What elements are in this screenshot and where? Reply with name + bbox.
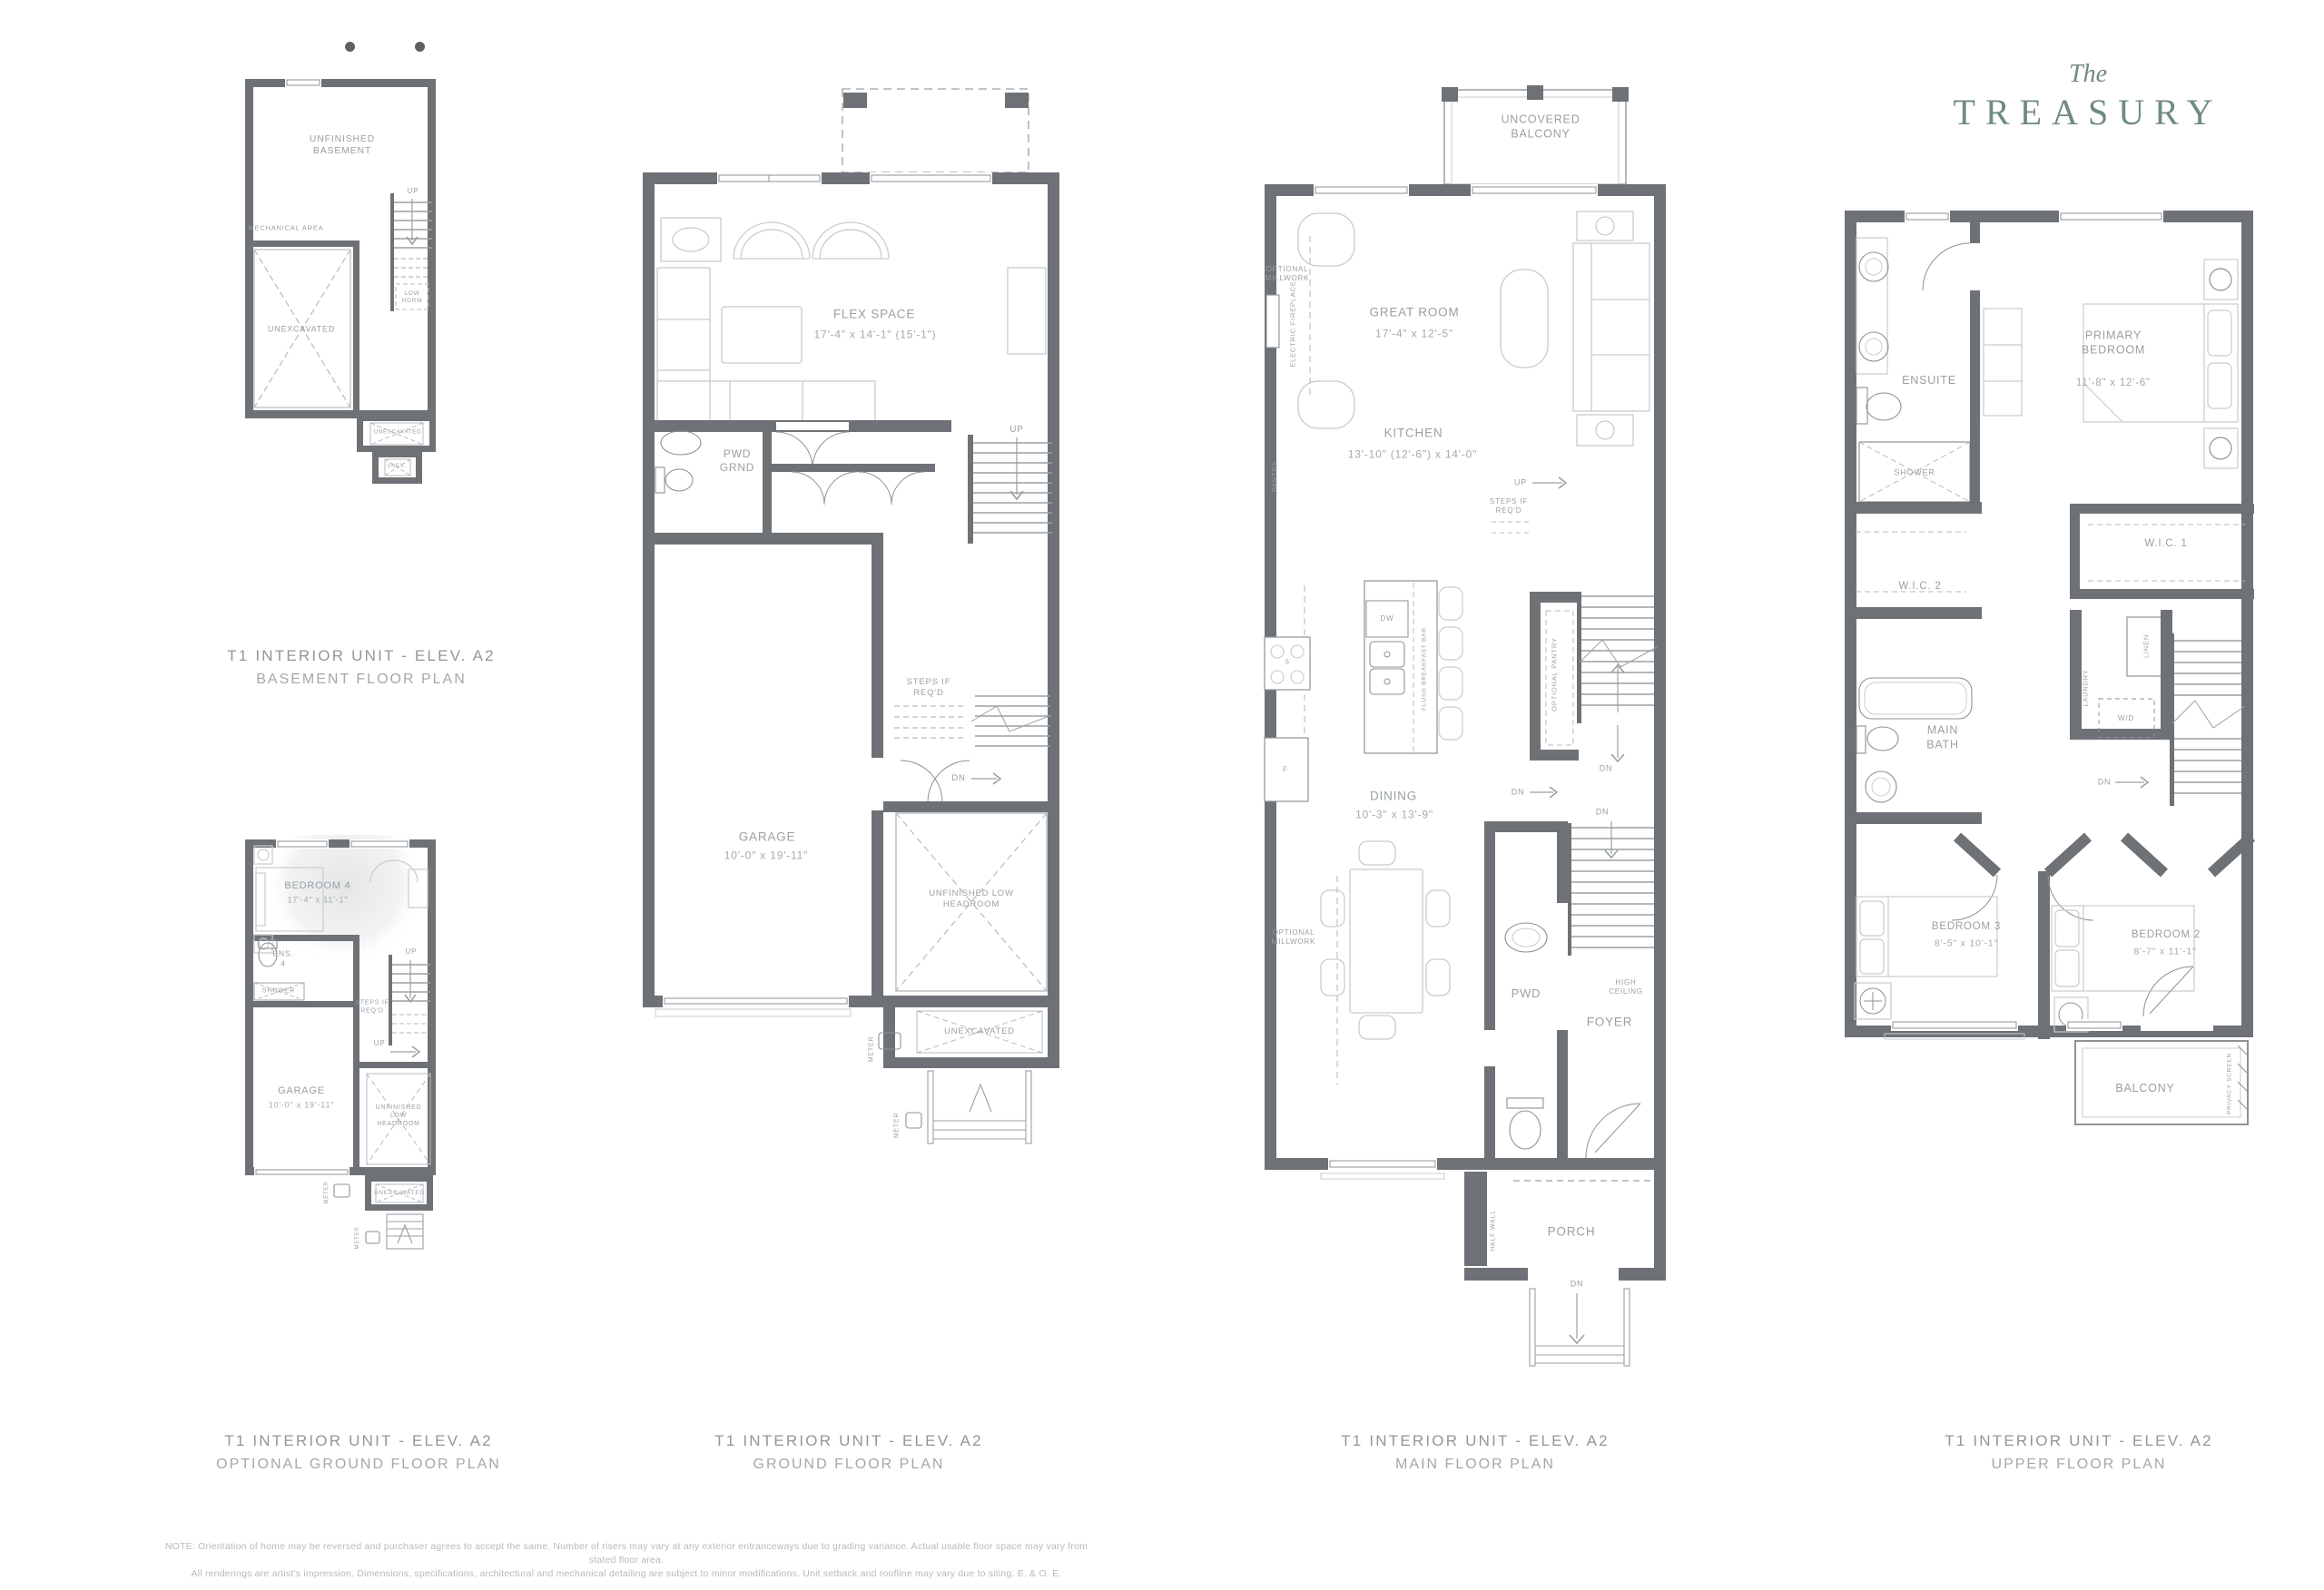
porch-stairs — [1530, 1289, 1630, 1366]
label-optional-millwork: OPTIONAL MILLWORK — [1256, 265, 1319, 283]
room-label-dining: DINING — [1370, 790, 1417, 805]
label-steps-if-reqd: STEPS IF REQ'D — [350, 999, 394, 1016]
label-steps-if-reqd: STEPS IF REQ'D — [1482, 497, 1535, 515]
dim-label-bedroom3: 8'-5" x 10'-1" — [1935, 937, 1998, 949]
label-electric-fireplace: ELECTRIC FIREPLACE — [1289, 280, 1297, 367]
label-dw: DW — [1381, 614, 1394, 623]
label-shower: SHOWER — [262, 988, 295, 996]
page: The TREASURY — [0, 0, 2324, 1590]
label-privacy-screen: PRIVACY SCREEN — [2227, 1053, 2233, 1114]
plan-title-line2: MAIN FLOOR PLAN — [1330, 1457, 1620, 1473]
room-label-mechanical-area: MECHANICAL AREA — [249, 223, 324, 231]
dim-label-garage: 10'-0" x 19'-11" — [724, 849, 808, 863]
optional-ground-floorplan-drawing — [243, 835, 443, 1425]
room-label-ensuite: ENSUITE — [1902, 374, 1956, 388]
stair-label-up: UP — [408, 187, 419, 196]
dim-label-great-room: 17'-4" x 12'-5" — [1375, 328, 1453, 341]
disclaimer-line1: NOTE: Orientation of home may be reverse… — [154, 1540, 1098, 1567]
disclaimer-line2: All renderings are artist's impression. … — [154, 1567, 1098, 1581]
brand-logo-name: TREASURY — [1952, 91, 2224, 133]
stairs-mid — [894, 696, 1051, 802]
label-optional-millwork-2: OPTIONAL MILLWORK — [1262, 928, 1325, 947]
plan-title-upper: T1 INTERIOR UNIT - ELEV. A2 UPPER FLOOR … — [1934, 1432, 2224, 1473]
room-label-porch: PORCH — [1548, 1225, 1596, 1241]
plan-ground: FLEX SPACE 17'-4" x 14'-1" (15'-1") PWD … — [635, 82, 1062, 1180]
label-linen: LINEN — [2142, 634, 2151, 658]
plan-title-line1: T1 INTERIOR UNIT - ELEV. A2 — [1934, 1432, 2224, 1450]
label-stove: S — [1285, 660, 1289, 668]
plan-title-line2: GROUND FLOOR PLAN — [704, 1457, 994, 1473]
label-optional-pantry: OPTIONAL PANTRY — [1551, 637, 1559, 711]
bullet-dot — [345, 42, 355, 52]
stairs-basement — [1568, 821, 1654, 956]
plan-title-line1: T1 INTERIOR UNIT - ELEV. A2 — [1330, 1432, 1620, 1450]
room-label-unfinished-basement: UNFINISHED BASEMENT — [297, 133, 388, 157]
room-label-main-bath: MAIN BATH — [1911, 723, 1974, 751]
room-label-unex: UNEX. — [388, 464, 407, 470]
plan-title-line1: T1 INTERIOR UNIT - ELEV. A2 — [213, 1432, 504, 1450]
label-high-ceiling: HIGH CEILING — [1603, 978, 1649, 996]
bedroom3-furniture — [1856, 897, 1997, 977]
main-floorplan-drawing — [1257, 77, 1689, 1379]
dim-label-garage: 10'-0" x 19'-11" — [269, 1100, 335, 1110]
disclaimer-note: NOTE: Orientation of home may be reverse… — [154, 1540, 1098, 1581]
label-low-hdrm: LOW HDRM — [395, 290, 429, 305]
room-label-bedroom4: BEDROOM 4 — [284, 880, 350, 893]
dim-label-primary-bedroom: 11'-8" x 12'-6" — [2076, 377, 2151, 389]
plan-title-line2: UPPER FLOOR PLAN — [1934, 1457, 2224, 1473]
room-label-pwd-grnd: PWD GRND — [711, 447, 763, 475]
label-meter: METER — [324, 1182, 330, 1204]
room-label-wic2: W.I.C. 2 — [1898, 580, 1941, 593]
room-label-foyer: FOYER — [1587, 1016, 1633, 1031]
brand-logo-prefix: The — [1952, 60, 2224, 89]
bullet-dot — [415, 42, 425, 52]
room-label-unfinished-low-headroom: UNFINISHED LOW HEADROOM — [926, 888, 1017, 910]
room-label-unexcavated: UNEXCAVATED — [374, 1190, 425, 1197]
room-label-unexcavated: UNEXCAVATED — [268, 324, 335, 334]
porch-stairs — [928, 1071, 1031, 1143]
stair-label-dn: DN — [951, 773, 965, 784]
dim-label-bedroom2: 8'-7" x 11'-1" — [2133, 946, 2196, 957]
plan-title-line2: BASEMENT FLOOR PLAN — [216, 672, 507, 688]
room-label-unfinished-low-headroom: UNFINISHED LOW HEADROOM — [371, 1104, 426, 1128]
label-uncovered-balcony: UNCOVERED BALCONY — [1472, 113, 1609, 141]
wic2-walls — [1845, 532, 1982, 619]
plan-upper: ENSUITE SHOWER PRIMARY BEDROOM 11'-8" x … — [1841, 201, 2299, 1331]
label-laundry: LAUNDRY — [2082, 669, 2090, 706]
great-room-furniture — [1298, 211, 1649, 446]
room-label-pwd: PWD — [1512, 986, 1541, 1001]
plan-title-line1: T1 INTERIOR UNIT - ELEV. A2 — [216, 647, 507, 665]
label-wd: W/D — [2118, 714, 2134, 723]
room-label-ens4: ENS. 4 — [271, 948, 296, 967]
plan-title-basement: T1 INTERIOR UNIT - ELEV. A2 BASEMENT FLO… — [216, 647, 507, 688]
stair-label-dn: DN — [1600, 763, 1613, 773]
ensuite-fixtures — [1856, 238, 1970, 502]
kitchen-island — [1364, 581, 1462, 753]
room-label-wic1: W.I.C. 1 — [2144, 537, 2187, 550]
ground-floorplan-drawing — [635, 82, 1062, 1180]
stair-label-up: UP — [1009, 425, 1024, 437]
label-steps-if-reqd: STEPS IF REQ'D — [899, 677, 959, 699]
plan-title-line2: OPTIONAL GROUND FLOOR PLAN — [213, 1457, 504, 1473]
room-label-great-room: GREAT ROOM — [1369, 306, 1459, 321]
label-fridge: F — [1283, 765, 1288, 775]
dim-label-bedroom4: 17'-4" x 11'-1" — [288, 895, 349, 905]
label-flush-breakfast-bar: FLUSH BREAKFAST BAR — [1422, 627, 1428, 711]
stairs-up — [968, 435, 1052, 544]
stair-label-up: UP — [406, 947, 418, 957]
plan-title-main: T1 INTERIOR UNIT - ELEV. A2 MAIN FLOOR P… — [1330, 1432, 1620, 1473]
room-label-garage: GARAGE — [278, 1085, 325, 1098]
room-label-bedroom2: BEDROOM 2 — [2132, 928, 2201, 941]
dining-furniture — [1321, 841, 1450, 1039]
stair-label-dn-porch: DN — [1571, 1279, 1584, 1289]
plan-title-line1: T1 INTERIOR UNIT - ELEV. A2 — [704, 1432, 994, 1450]
stair-label-dn-2: DN — [1512, 787, 1525, 797]
brand-logo: The TREASURY — [1952, 60, 2224, 133]
plan-optional-ground: BEDROOM 4 17'-4" x 11'-1" ENS. 4 SHOWER … — [243, 835, 443, 1425]
stair-label-dn-3: DN — [1596, 807, 1610, 817]
label-meter-2: METER — [355, 1227, 360, 1250]
room-label-flex-space: FLEX SPACE — [833, 308, 915, 323]
stair-label-dn: DN — [2098, 777, 2112, 787]
dim-label-flex-space: 17'-4" x 14'-1" (15'-1") — [814, 329, 937, 342]
stairs-dn — [2115, 633, 2245, 806]
label-meter: METER — [869, 1036, 875, 1063]
dim-label-kitchen: 13'-10" (12'-6") x 14'-0" — [1348, 448, 1477, 462]
exterior-stairs — [387, 1214, 423, 1249]
label-pantry: PANTRY — [1271, 461, 1279, 493]
hall-angled-walls — [1957, 837, 2251, 873]
dim-label-dining: 10'-3" x 13'-9" — [1355, 809, 1433, 822]
room-label-unexcavated: UNEXCAVATED — [944, 1026, 1015, 1037]
room-label-bedroom3: BEDROOM 3 — [1932, 920, 2001, 933]
label-shower: SHOWER — [1894, 467, 1935, 477]
plan-basement: UNFINISHED BASEMENT MECHANICAL AREA UP L… — [243, 77, 443, 585]
stairs-up — [389, 955, 430, 1057]
room-label-kitchen: KITCHEN — [1384, 427, 1443, 442]
stair-label-up: UP — [1514, 477, 1527, 487]
room-label-unexcavated-small: UNEXCAVATED — [374, 429, 421, 437]
room-label-balcony: BALCONY — [2115, 1082, 2174, 1096]
plan-title-optional-ground: T1 INTERIOR UNIT - ELEV. A2 OPTIONAL GRO… — [213, 1432, 504, 1473]
plan-title-ground: T1 INTERIOR UNIT - ELEV. A2 GROUND FLOOR… — [704, 1432, 994, 1473]
wic1-walls — [2070, 504, 2254, 599]
stairs-upper — [1577, 592, 1657, 761]
label-meter-2: METER — [894, 1113, 901, 1139]
primary-bedroom-furniture — [1984, 260, 2238, 468]
room-label-garage: GARAGE — [739, 830, 796, 846]
stair-label-up-2: UP — [374, 1039, 386, 1048]
plan-main: UNCOVERED BALCONY OPTIONAL MILLWORK ELEC… — [1257, 77, 1689, 1379]
upper-floorplan-drawing — [1841, 201, 2299, 1331]
room-label-primary-bedroom: PRIMARY BEDROOM — [2054, 329, 2172, 357]
label-half-wall: HALF WALL — [1491, 1210, 1497, 1251]
